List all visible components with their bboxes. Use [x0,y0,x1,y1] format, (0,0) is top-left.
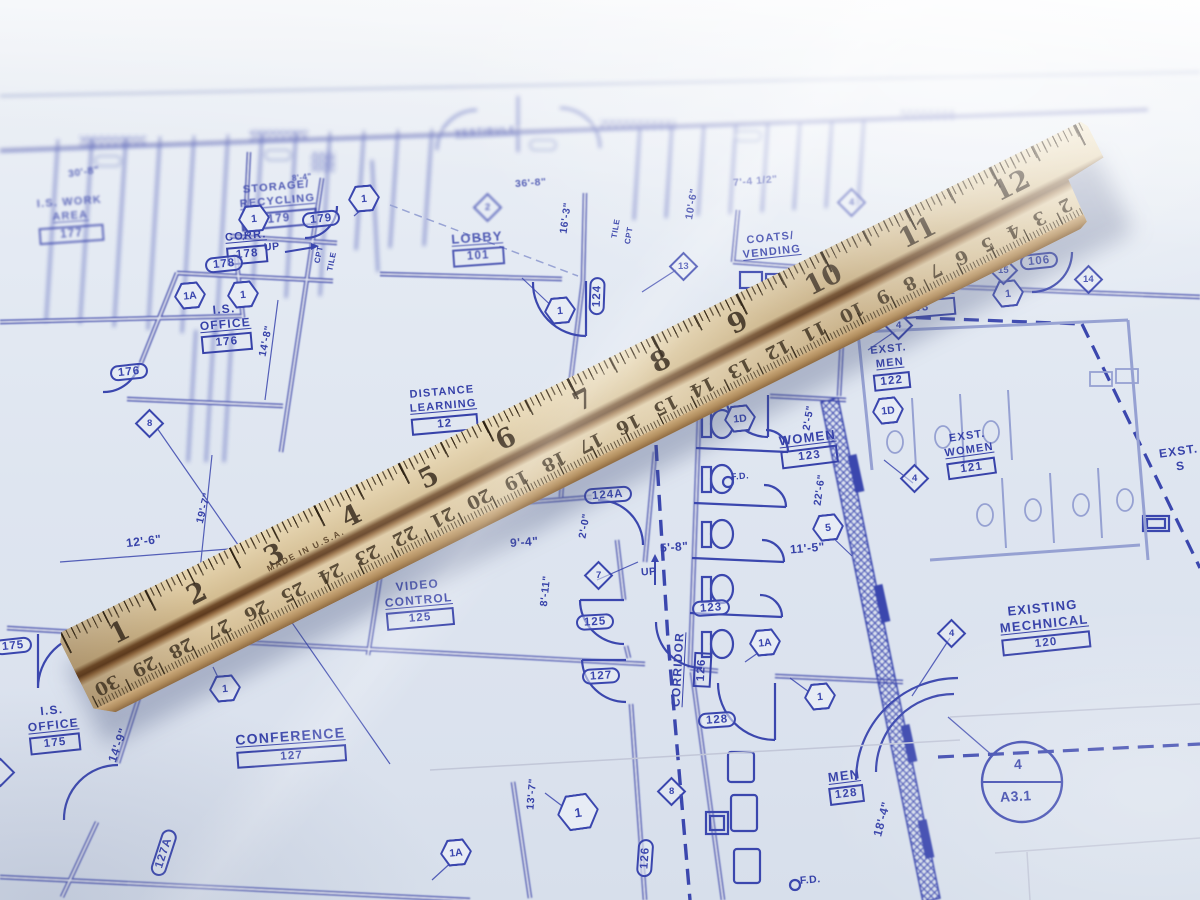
anno-cpt: CPT [313,245,325,264]
door-tag-125: 125 [576,613,615,631]
ruler-inch-number: 7 [568,382,599,418]
door-tag-127: 127 [582,667,621,685]
ruler-inch-number: 8 [645,344,676,380]
keynote-hex-1: 1 [803,682,837,712]
keynote-diamond-2: 2 [473,193,503,223]
keynote-hex-1: 1 [555,791,602,832]
room-label-exst-edge: EXST. S [1158,441,1200,476]
door-tag-127a: 127A [149,828,179,878]
dim-36-8: 36'-8" [515,176,547,190]
keynote-hex-1: 1 [237,204,271,234]
dim-11-5: 11'-5" [789,540,825,557]
door-tag-126: 126 [636,838,655,877]
keynote-diamond-4: 4 [900,464,930,494]
keynote-hex-1: 1 [226,280,260,310]
callout-sheet-number: 4 [1014,756,1023,772]
dim-8-11: 8'-11" [538,575,553,607]
anno-fd: F.D. [731,470,750,482]
room-label-exst-women: EXST. WOMEN 121 [942,427,997,481]
anno-tile: TILE [610,218,622,239]
dim-10-6: 10'-6" [683,187,700,220]
anno-up: UP [264,240,281,253]
ruler-inch-number: 5 [413,460,444,496]
photo-of-blueprint-with-ruler: I.S. WORK AREA 177 STORAGE/ RECYCLING 17… [0,0,1200,900]
dim-2-0: 2'-0" [576,513,592,540]
ruler-inch-number: 9 [723,305,754,341]
room-label-lobby: LOBBY 101 [451,228,505,268]
keynote-diamond-edge [0,758,15,788]
dim-22-6: 22'-6" [812,474,828,507]
anno-fd: F.D. [800,873,822,887]
keynote-diamond-8: 8 [657,777,687,807]
room-label-men: MEN 128 [826,766,865,806]
door-tag-179: 179 [301,209,341,229]
door-tag-178: 178 [204,254,244,274]
room-label-coats-vending: COATS/ VENDING [741,229,802,262]
room-label-vestibule: VESTIBULE [455,124,517,138]
dim-12-6: 12'-6" [125,532,162,550]
dim-14-8: 14'-8" [257,324,275,357]
keynote-hex-1a: 1A [748,628,782,658]
ruler-inch-number: 1 [104,614,135,650]
room-label-existing-mechanical: EXISTING MECHNICAL 120 [998,596,1092,657]
door-tag-124: 124 [588,277,605,316]
dim-18-4: 18'-4" [870,800,893,838]
keynote-hex-1a: 1A [173,281,207,311]
room-number-corridor-126: 126 [691,652,713,688]
keynote-diamond-8: 8 [135,409,165,439]
anno-tile: TILE [325,251,338,272]
keynote-diamond-4: 4 [837,188,867,218]
room-label-distance-learning: DISTANCE LEARNING 12 [408,383,479,436]
keynote-hex-5: 5 [811,512,846,542]
keynote-diamond-4: 4 [937,619,967,649]
dim-2-5: 2'-5" [800,405,816,432]
room-label-women: WOMEN 123 [778,427,839,470]
dim-19-7: 19'-7" [194,491,214,525]
keynote-hex-1: 1 [347,184,381,214]
door-tag-175: 175 [0,636,33,656]
room-label-office-176: I.S. OFFICE 176 [198,300,253,354]
keynote-diamond-14: 14 [1074,265,1104,295]
ruler-inch-number: 6 [491,421,522,457]
dim-7-4-half: 7'-4 1/2" [733,173,779,189]
anno-cpt: CPT [623,226,635,245]
keynote-diamond-13: 13 [669,252,699,282]
dim-16-3: 16'-3" [558,202,574,235]
ruler-inch-number: 2 [182,576,213,612]
keynote-diamond-7: 7 [584,561,614,591]
keynote-hex-1a: 1A [439,838,473,868]
keynote-hex-1: 1 [543,296,577,326]
keynote-hex-1d: 1D [871,395,906,425]
door-tag-176: 176 [109,362,149,382]
room-label-corridor-126: CORRIDOR [667,599,689,740]
dim-13-7: 13'-7" [524,778,539,810]
room-label-conference: CONFERENCE 127 [235,724,347,769]
callout-sheet-ref: A3.1 [1000,787,1032,805]
door-tag-128: 128 [697,711,736,730]
dim-30-8: 30'-8" [67,164,100,180]
room-label-office-175: I.S. OFFICE 175 [26,700,82,755]
door-tag-123: 123 [691,599,730,618]
room-label-work-area: I.S. WORK AREA 177 [36,194,104,246]
dim-5-8: 5'-8" [660,539,689,555]
anno-up: UP [641,565,657,578]
